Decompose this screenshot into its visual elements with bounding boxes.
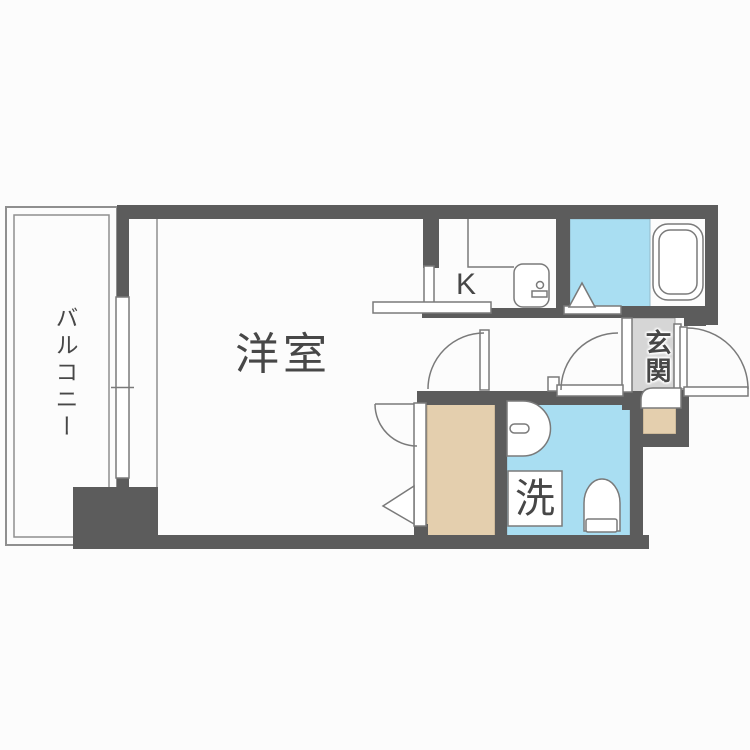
floor-plan: 洋室 バルコニー K 玄関 洗 bbox=[0, 0, 750, 750]
wall-step-left-chunk bbox=[622, 391, 643, 410]
entrance-step-edge bbox=[641, 388, 681, 408]
wall-above-front-door bbox=[684, 318, 706, 326]
washroom-door-swing-arc bbox=[561, 333, 618, 390]
kitchen-opening-vertical bbox=[424, 266, 434, 306]
washroom-door-leaf bbox=[557, 385, 623, 396]
closet-front-track bbox=[414, 403, 426, 526]
living-door-swing-arc bbox=[375, 404, 417, 446]
kitchen-counter-line bbox=[468, 219, 514, 267]
entrance-step-floor bbox=[643, 407, 676, 434]
wall-kitchen-bath bbox=[556, 218, 570, 308]
balcony-label: バルコニー bbox=[53, 306, 76, 441]
closet-door-swing-arc bbox=[428, 333, 484, 389]
wall-closet-right bbox=[495, 400, 507, 537]
closet-door-leaf bbox=[480, 330, 489, 390]
washbasin-faucet bbox=[510, 424, 529, 433]
entrance-label: 玄関 bbox=[644, 329, 670, 385]
entrance-hall-divider bbox=[622, 318, 632, 392]
wall-top bbox=[117, 205, 718, 219]
kitchen-label: K bbox=[456, 270, 476, 300]
wall-bottom bbox=[155, 535, 649, 549]
kitchen-faucet-knob bbox=[537, 282, 544, 289]
living-room-label: 洋室 bbox=[235, 333, 331, 377]
wall-pillar bbox=[73, 487, 158, 549]
wall-entry-nook-bottom bbox=[630, 434, 689, 447]
front-door-jamb bbox=[680, 327, 687, 389]
wall-washroom-right bbox=[630, 400, 643, 537]
closet-folding-door-icon bbox=[383, 486, 414, 524]
kitchen-opening-horizontal bbox=[373, 302, 491, 313]
wall-right-upper bbox=[705, 205, 718, 325]
kitchen-faucet-base bbox=[532, 291, 547, 297]
closet-floor bbox=[427, 403, 495, 536]
floor-plan-drawing bbox=[0, 0, 750, 750]
wall-kitchen-left bbox=[423, 218, 439, 268]
laundry-label: 洗 bbox=[515, 479, 555, 519]
front-door-leaf bbox=[684, 387, 748, 396]
toilet-tank bbox=[586, 519, 617, 532]
wall-left-upper bbox=[117, 205, 129, 298]
front-door-swing-arc bbox=[687, 328, 748, 389]
